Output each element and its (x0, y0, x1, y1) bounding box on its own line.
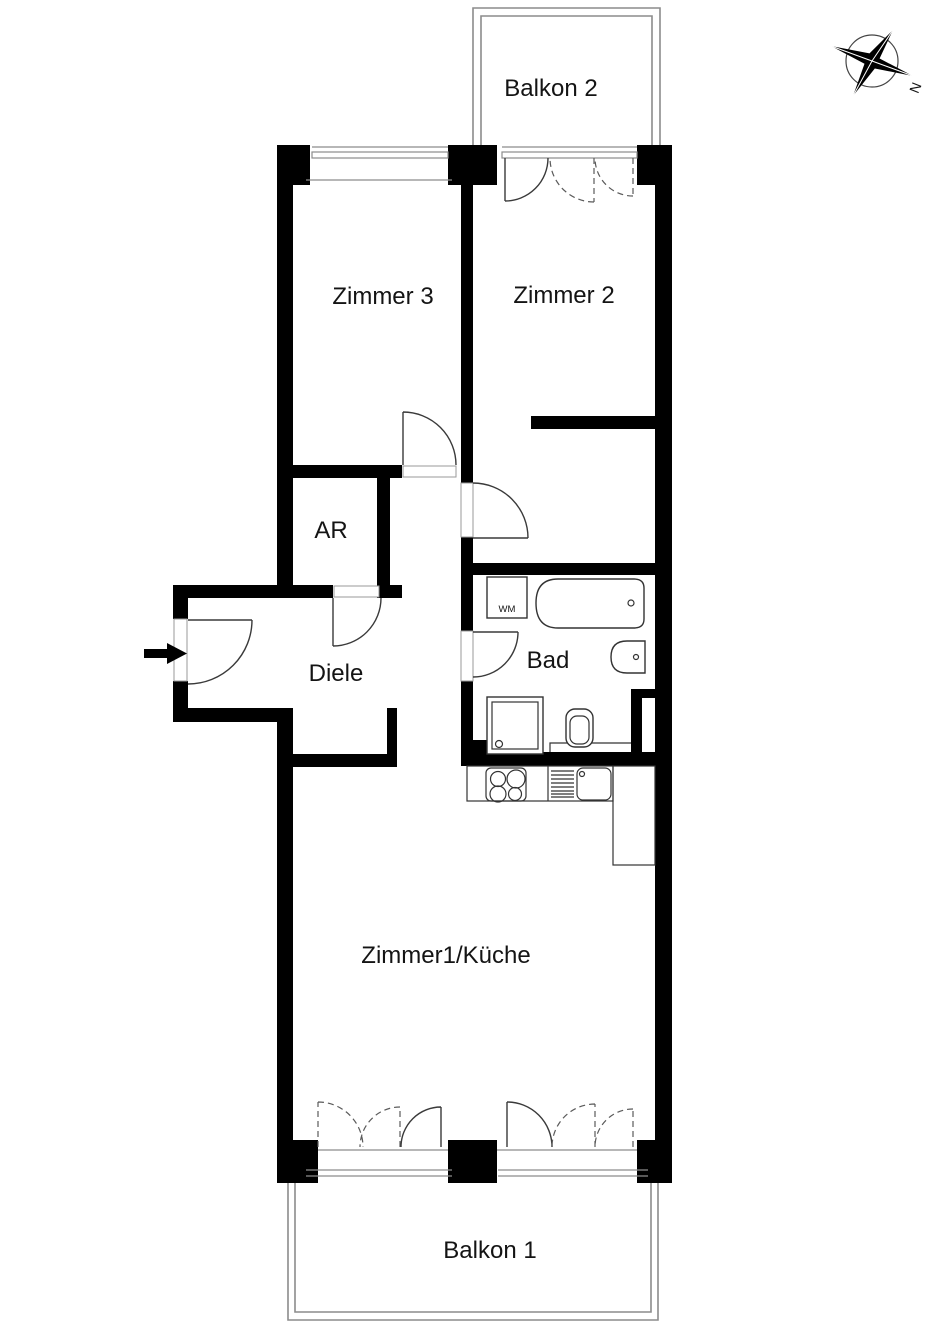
door-leaf-swing (401, 1107, 441, 1147)
door-leaf-swing-dashed (550, 158, 594, 202)
door-leaf-swing (333, 598, 381, 646)
door-leaf-swing-dashed (595, 158, 633, 196)
compass-north-label: N (906, 80, 925, 95)
floor-plan-page: WM N Balkon 2 Zimmer 3 Zimmer 2 AR (0, 0, 940, 1333)
window-frame (312, 152, 448, 158)
room-label-balkon2: Balkon 2 (504, 75, 597, 102)
kitchen-fixtures (467, 766, 655, 865)
kitchen-corner-unit (613, 766, 655, 865)
door-leaf-swing-dashed (552, 1104, 595, 1147)
door-leaf-swing (188, 620, 252, 684)
room-label-zimmer1-kueche: Zimmer1/Küche (361, 942, 530, 969)
bad-door (461, 631, 518, 681)
cooktop-burner (509, 788, 522, 801)
zimmer3-window (306, 147, 452, 180)
zimmer3-door (403, 412, 456, 477)
room-label-zimmer3: Zimmer 3 (332, 283, 433, 310)
door-jamb (461, 483, 473, 537)
cooktop-burner (490, 786, 506, 802)
door-sill-lines (306, 1170, 452, 1176)
kitchen-counter (467, 766, 613, 801)
compass-rose-icon: N (831, 30, 925, 96)
door-leaf-swing-dashed (360, 1107, 400, 1147)
door-frame (502, 152, 637, 158)
door-jamb (403, 466, 456, 477)
door-leaf-swing (505, 158, 548, 201)
zimmer2-balcony-door (502, 147, 637, 202)
room-label-zimmer2: Zimmer 2 (513, 282, 614, 309)
sink-tap (580, 772, 585, 777)
door-leaf-swing (403, 412, 456, 465)
cooktop-burner (491, 772, 506, 787)
washbasin (611, 641, 645, 673)
washing-machine-label: WM (499, 604, 516, 615)
door-jamb (461, 631, 473, 681)
room-label-ar: AR (314, 517, 347, 544)
door-leaf-swing-dashed (318, 1102, 363, 1147)
door-leaf-swing-dashed (595, 1109, 633, 1147)
cooktop-burner (507, 770, 525, 788)
zimmer1-balcony-door-right (497, 1102, 648, 1176)
room-label-bad: Bad (527, 647, 570, 674)
door-leaf-swing (507, 1102, 552, 1147)
door-leaf-swing (473, 632, 518, 677)
ar-door (333, 586, 381, 646)
room-label-diele: Diele (309, 660, 364, 687)
room-label-balkon1: Balkon 1 (443, 1237, 536, 1264)
door-leaf-swing (473, 483, 528, 538)
zimmer2-door (461, 483, 528, 538)
entry-door (174, 619, 252, 684)
door-jamb (334, 586, 379, 597)
compass-star (831, 30, 913, 96)
door-sill-lines (498, 1170, 648, 1176)
kitchen-sink (577, 768, 611, 800)
drainboard (551, 771, 574, 797)
floor-plan-drawing: WM N Balkon 2 Zimmer 3 Zimmer 2 AR (0, 0, 940, 1333)
zimmer1-balcony-door-left (306, 1102, 452, 1176)
